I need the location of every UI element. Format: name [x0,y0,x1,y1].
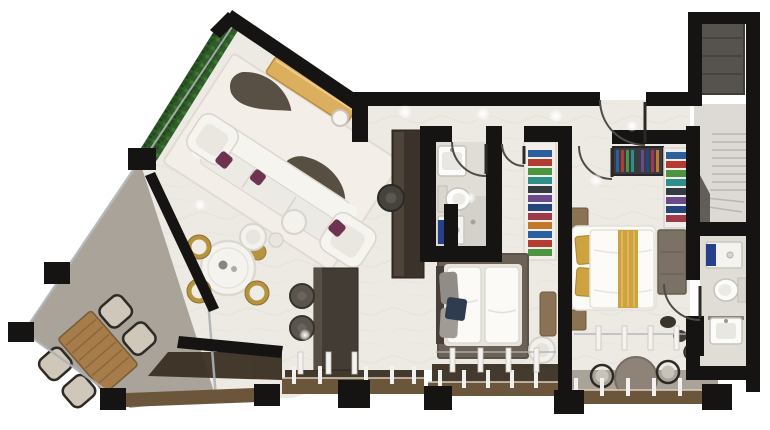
island-edge [314,268,322,370]
wall-segment [686,236,700,280]
clothes-item [666,152,686,159]
toilet [714,278,746,302]
pillar [554,390,584,414]
wall-segment [348,92,600,106]
clothes-item [528,222,552,229]
wall-segment [352,100,368,142]
washer [706,242,742,268]
wall-segment [420,126,452,142]
clothes-item [528,240,552,247]
wall-segment [686,126,700,226]
planter-top [386,193,397,204]
clothes-item [528,186,552,193]
pillar [424,386,452,410]
wall-segment [686,222,760,236]
clothes-item [666,215,686,222]
clothes-item [528,213,552,220]
door-mat [700,22,744,94]
table-decor [219,261,228,270]
clothes-item [528,249,552,256]
dresser [658,230,686,294]
wall-segment [486,126,502,262]
clothes-item [651,150,654,172]
pillar [128,148,156,170]
coffee-table [282,210,306,234]
navy-throw [445,297,468,322]
clothes-item [666,179,686,186]
sink [708,316,744,344]
slippers [660,316,676,328]
table-decor [231,266,237,272]
wall-segment [686,366,760,380]
clothes-item [528,204,552,211]
pillar [702,384,732,410]
bathroom [436,142,486,246]
clothes-item [666,161,686,168]
floor-plan-render [0,0,770,430]
clothes-item [528,231,552,238]
pillar [8,322,34,342]
hanging-clothes [616,150,659,172]
pillar [338,380,370,408]
duvet [485,267,519,343]
wall-segment [686,316,704,356]
entry-vestibule [700,22,744,94]
clothes-item [666,197,686,204]
clothes-item [621,150,624,172]
clothes-item [528,177,552,184]
shower-drain [471,220,476,225]
clothes-item [656,150,659,172]
clothes-item [616,150,619,172]
wall-segment [746,12,760,392]
floor-lamp [332,110,348,126]
clothes-item [636,150,639,172]
clothes-item [641,150,644,172]
wall-segment [612,130,688,144]
clothes-item [666,188,686,195]
clothes-item [646,150,649,172]
clothes-item [666,206,686,213]
wall-segment [420,126,436,262]
clothes-item [528,168,552,175]
closet-shelves [524,142,556,260]
pillar [100,388,126,410]
clothes-item [528,150,552,157]
clothes-item [528,195,552,202]
clothes-item [528,159,552,166]
wall-segment [420,246,502,262]
white-armchair [240,224,266,250]
coffee-table [269,233,283,247]
wall-segment [646,92,694,106]
clothes-item [631,150,634,172]
clothes-rail [612,146,664,176]
wall-segment [444,204,458,252]
wall-segment [558,126,572,398]
clothes-item [626,150,629,172]
wood-bench [540,292,556,336]
pillar [254,384,280,406]
wall-segment [688,12,702,106]
clothes-item [666,170,686,177]
pillar [44,262,70,284]
